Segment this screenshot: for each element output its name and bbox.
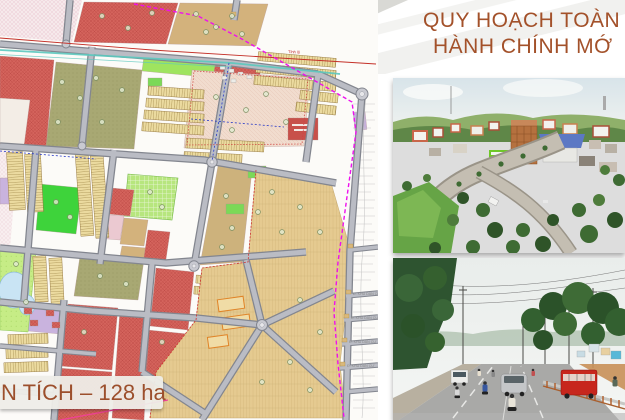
watermark-wedge <box>378 0 408 15</box>
red-bus <box>561 370 597 399</box>
title-line-1: QUY HOẠCH TOÀN K <box>423 8 625 34</box>
silver-van <box>501 374 527 396</box>
edge-road-label: Đ. KHU DÂN CƯ <box>347 364 374 368</box>
title-line-2: HÀNH CHÍNH MỚ <box>423 34 625 60</box>
master-plan-map: Tỉnh lộ Đ. KHU DÂN CƯ Đ. KHU DÂN CƯ Đ. K… <box>0 0 378 420</box>
area-banner: N TÍCH – 128 ha <box>0 376 163 409</box>
road-name-label: Tỉnh lộ <box>288 49 301 55</box>
aerial-town-photo <box>393 78 625 253</box>
small-vehicle <box>543 200 548 203</box>
slide-title: QUY HOẠCH TOÀN K HÀNH CHÍNH MỚ <box>423 8 625 60</box>
area-banner-text: N TÍCH – 128 ha <box>1 380 166 406</box>
edge-road-label: Đ. KHU DÂN CƯ <box>353 292 378 296</box>
edge-road-label: Đ. KHU DÂN CƯ <box>351 316 378 320</box>
slide: Tỉnh lộ Đ. KHU DÂN CƯ Đ. KHU DÂN CƯ Đ. K… <box>0 0 625 420</box>
white-van <box>488 196 499 206</box>
street-traffic-photo <box>393 258 625 420</box>
edge-road-label: Đ. KHU DÂN CƯ <box>349 340 376 344</box>
tall-building-roof <box>511 120 537 126</box>
map-drawing: Tỉnh lộ Đ. KHU DÂN CƯ Đ. KHU DÂN CƯ Đ. K… <box>0 0 378 420</box>
